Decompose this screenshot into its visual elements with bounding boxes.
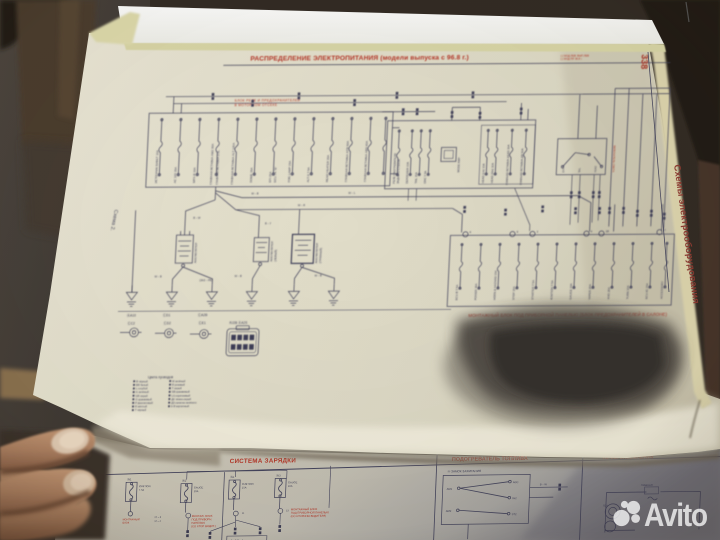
svg-text:Avito: Avito <box>644 498 708 533</box>
